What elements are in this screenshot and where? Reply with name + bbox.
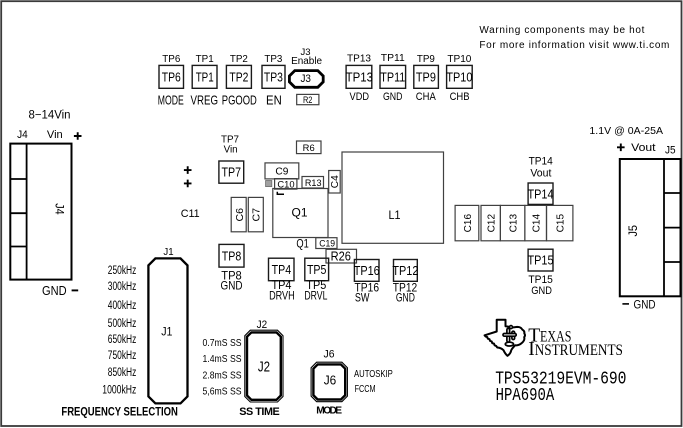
svg-text:C14: C14	[531, 214, 543, 233]
svg-text:Warning components may be hot: Warning components may be hot	[479, 25, 644, 36]
svg-text:Vin: Vin	[224, 144, 238, 155]
svg-text:R2: R2	[303, 95, 313, 105]
svg-text:1000kHz: 1000kHz	[102, 385, 136, 397]
svg-text:8−14Vin: 8−14Vin	[29, 110, 71, 122]
svg-text:J2: J2	[257, 319, 268, 331]
svg-text:TP1: TP1	[196, 54, 214, 65]
svg-text:C11: C11	[181, 208, 200, 220]
svg-text:TP13: TP13	[347, 53, 371, 64]
svg-text:250kHz: 250kHz	[108, 265, 137, 277]
svg-text:PGOOD: PGOOD	[222, 92, 257, 107]
svg-text:SS TIME: SS TIME	[239, 406, 279, 418]
svg-text:SW: SW	[355, 291, 370, 305]
svg-text:GND: GND	[531, 285, 552, 297]
svg-text:750kHz: 750kHz	[108, 350, 137, 362]
svg-text:C6: C6	[234, 208, 246, 222]
svg-text:GND: GND	[221, 279, 243, 293]
svg-text:TP11: TP11	[380, 69, 405, 84]
svg-text:C12: C12	[486, 214, 498, 233]
svg-text:MODE: MODE	[158, 92, 184, 107]
svg-text:VREG: VREG	[191, 92, 219, 107]
svg-text:2.8mS SS: 2.8mS SS	[203, 369, 242, 381]
svg-text:C9: C9	[275, 165, 288, 177]
svg-text:NSTRUMENTS: NSTRUMENTS	[535, 340, 623, 359]
svg-text:R13: R13	[305, 177, 322, 188]
svg-text:TP2: TP2	[229, 69, 248, 84]
svg-text:TP8: TP8	[222, 248, 242, 263]
svg-text:TP2: TP2	[230, 54, 248, 65]
svg-text:J2: J2	[258, 359, 270, 375]
svg-text:500kHz: 500kHz	[108, 318, 137, 330]
svg-text:J1: J1	[161, 324, 172, 338]
svg-text:TP9: TP9	[417, 54, 435, 65]
svg-text:J4: J4	[53, 203, 65, 215]
svg-text:CHA: CHA	[416, 91, 437, 103]
svg-text:TP10: TP10	[447, 54, 472, 65]
svg-text:J1: J1	[163, 247, 174, 258]
svg-text:TP14: TP14	[529, 155, 553, 167]
svg-text:TP13: TP13	[346, 69, 373, 84]
svg-text:1.4mS SS: 1.4mS SS	[203, 353, 242, 365]
svg-text:C10: C10	[277, 178, 294, 189]
svg-text:C7: C7	[251, 208, 263, 222]
svg-text:HPA690A: HPA690A	[496, 385, 555, 406]
svg-text:TP16: TP16	[354, 263, 380, 278]
svg-text:AUTOSKIP: AUTOSKIP	[354, 368, 393, 380]
svg-text:TP12: TP12	[392, 263, 418, 278]
svg-text:TP7: TP7	[222, 165, 242, 180]
svg-text:J5: J5	[665, 144, 676, 156]
svg-text:TP9: TP9	[416, 69, 436, 84]
svg-text:C4: C4	[330, 175, 341, 189]
svg-text:GND: GND	[383, 91, 403, 103]
svg-text:TP11: TP11	[381, 53, 405, 64]
svg-text:Vout: Vout	[631, 142, 656, 154]
svg-text:400kHz: 400kHz	[108, 300, 137, 312]
svg-text:TP3: TP3	[264, 69, 283, 84]
svg-text:650kHz: 650kHz	[108, 334, 137, 346]
svg-text:TP3: TP3	[264, 54, 282, 65]
svg-text:Q1: Q1	[296, 238, 308, 250]
svg-text:300kHz: 300kHz	[108, 281, 137, 293]
svg-text:J6: J6	[324, 372, 337, 387]
svg-text:CHB: CHB	[450, 91, 470, 103]
svg-text:MODE: MODE	[316, 406, 342, 417]
svg-text:FCCM: FCCM	[355, 383, 376, 395]
svg-text:C15: C15	[555, 214, 567, 233]
svg-text:TP15: TP15	[528, 253, 554, 268]
svg-text:For more information visit www: For more information visit www.ti.com	[479, 40, 669, 51]
svg-text:Enable: Enable	[291, 56, 322, 67]
svg-text:850kHz: 850kHz	[108, 367, 137, 379]
svg-text:Vout: Vout	[530, 167, 551, 179]
svg-text:J4: J4	[17, 129, 28, 141]
svg-text:TP1: TP1	[196, 69, 214, 84]
svg-text:GND: GND	[634, 300, 656, 312]
svg-text:GND: GND	[396, 291, 415, 305]
svg-text:TP5: TP5	[307, 262, 327, 277]
svg-text:DRVL: DRVL	[304, 289, 327, 303]
svg-text:R26: R26	[331, 250, 351, 264]
svg-text:1.1V @ 0A-25A: 1.1V @ 0A-25A	[589, 125, 663, 137]
svg-text:J5: J5	[628, 225, 640, 237]
svg-text:J6: J6	[324, 349, 335, 361]
svg-text:TP6: TP6	[162, 54, 180, 65]
svg-text:TP4: TP4	[272, 262, 292, 277]
svg-text:J3: J3	[300, 73, 311, 85]
svg-text:C19: C19	[319, 238, 335, 249]
svg-text:Vin: Vin	[47, 129, 63, 141]
svg-text:TP6: TP6	[162, 69, 181, 84]
svg-text:C16: C16	[462, 214, 474, 233]
svg-text:EN: EN	[266, 92, 282, 107]
svg-text:Q1: Q1	[292, 208, 308, 220]
svg-text:DRVH: DRVH	[269, 289, 295, 303]
svg-text:FREQUENCY SELECTION: FREQUENCY SELECTION	[61, 407, 177, 419]
svg-text:VDD: VDD	[350, 91, 370, 103]
svg-text:R6: R6	[303, 143, 315, 153]
svg-text:C13: C13	[507, 214, 519, 233]
svg-text:5,6mS SS: 5,6mS SS	[203, 386, 242, 398]
svg-text:TP14: TP14	[528, 186, 554, 201]
svg-text:L1: L1	[389, 210, 401, 222]
svg-text:TP10: TP10	[446, 69, 472, 84]
svg-text:0.7mS SS: 0.7mS SS	[203, 337, 242, 349]
svg-text:GND: GND	[42, 284, 67, 298]
